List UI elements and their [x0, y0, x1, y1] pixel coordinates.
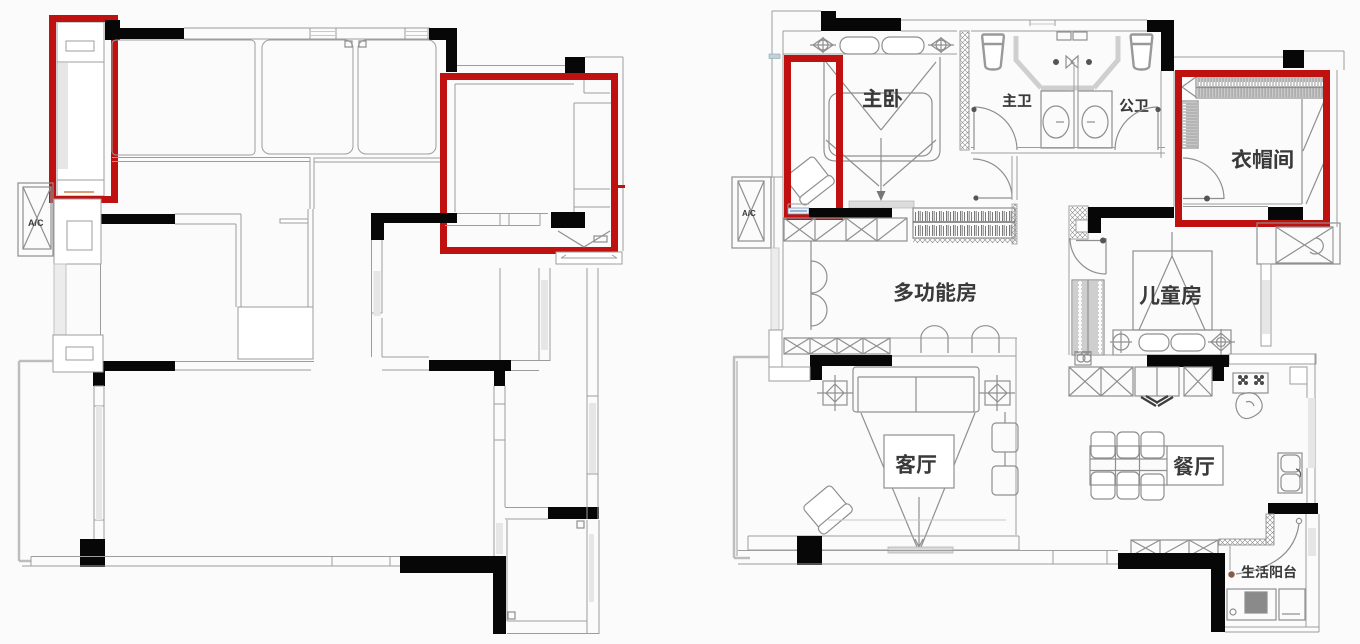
svg-text:A/C: A/C — [28, 218, 44, 228]
svg-text:A/C: A/C — [742, 209, 756, 218]
